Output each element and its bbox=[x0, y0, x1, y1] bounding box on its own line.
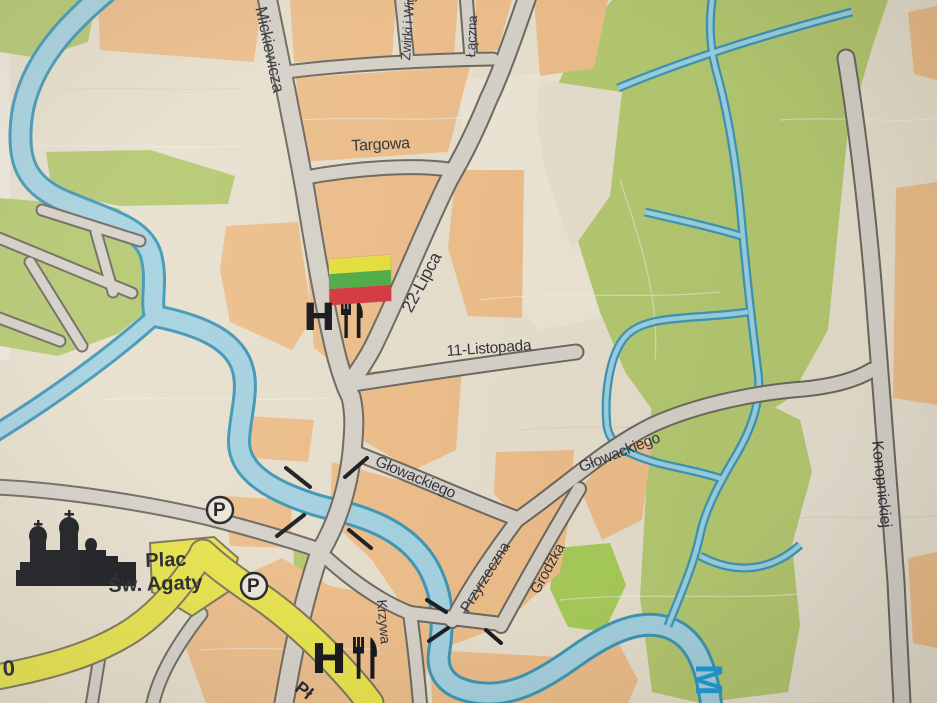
lithuanian-flag-marker bbox=[329, 255, 392, 305]
road-number-fragment: 0 bbox=[2, 657, 16, 680]
river-name-initial: M bbox=[689, 664, 727, 696]
place-label-sw-agaty: Św. Agaty bbox=[108, 573, 203, 596]
parking-letter: P bbox=[247, 577, 260, 596]
parking-letter: P bbox=[213, 501, 226, 520]
city-map: H H P P Mickiewicza Żwirki i Wig Łączna … bbox=[0, 0, 937, 703]
street-label-krzywa: Krzywa bbox=[375, 599, 393, 644]
street-label-targowa: Targowa bbox=[351, 136, 410, 155]
street-label-laczna: Łączna bbox=[464, 15, 480, 57]
hotel-icon: H bbox=[311, 639, 347, 680]
place-label-plac: Plac bbox=[145, 550, 187, 571]
hotel-icon: H bbox=[303, 299, 336, 336]
